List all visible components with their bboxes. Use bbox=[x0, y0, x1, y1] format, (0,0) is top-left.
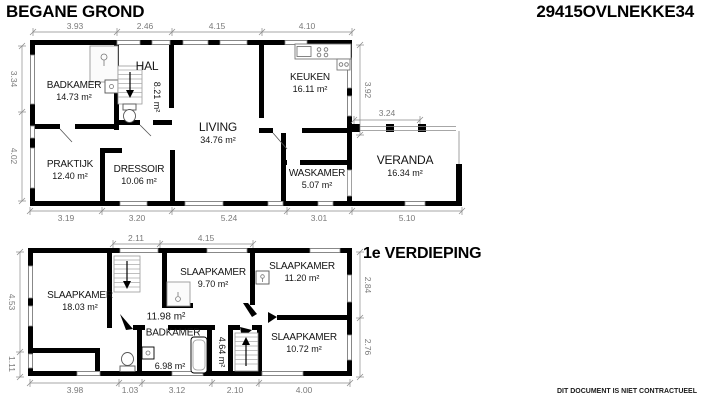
sink-icon-first bbox=[142, 347, 154, 359]
room-label-slaapkamer-mid: SLAAPKAMER 9.70 m² bbox=[180, 267, 246, 289]
room-label-dressoir: DRESSOIR 10.06 m² bbox=[114, 164, 165, 186]
dim-label: 2.11 bbox=[128, 233, 144, 243]
dim-label: 3.19 bbox=[58, 213, 75, 223]
sink-icon bbox=[105, 80, 118, 93]
ground-floor-title: BEGANE GROND bbox=[6, 2, 144, 22]
room-label-slaapkamer-left: SLAAPKAMER 18.03 m² bbox=[47, 290, 113, 312]
kitchen-counter-icon bbox=[295, 44, 351, 70]
dim-label: 2.46 bbox=[137, 21, 154, 31]
room-area-hal: 8.21 m² bbox=[152, 82, 162, 113]
floorplan-document: BEGANE GROND 29415OVLNEKKE34 1e VERDIEPI… bbox=[0, 0, 702, 402]
reference-code: 29415OVLNEKKE34 bbox=[536, 2, 694, 22]
dim-label: 3.24 bbox=[379, 108, 396, 118]
dim-label: 3.34 bbox=[9, 71, 19, 88]
room-label-badkamer-first: BADKAMER bbox=[146, 327, 201, 339]
room-label-waskamer: WASKAMER 5.07 m² bbox=[289, 168, 345, 190]
dim-label: 4.02 bbox=[9, 148, 19, 165]
dim-label: 4.00 bbox=[296, 385, 313, 395]
dim-label: 2.84 bbox=[363, 277, 373, 294]
toilet-icon bbox=[123, 104, 136, 123]
dim-label: 3.01 bbox=[311, 213, 328, 223]
dim-label: 4.53 bbox=[7, 294, 17, 311]
dim-label: 4.15 bbox=[209, 21, 226, 31]
disclaimer-text: DIT DOCUMENT IS NIET CONTRACTUEEL bbox=[557, 388, 697, 395]
dim-label: 2.76 bbox=[363, 339, 373, 356]
room-label-veranda: VERANDA 16.34 m² bbox=[377, 154, 434, 178]
shower-icon bbox=[90, 46, 118, 82]
stairs-down-icon bbox=[235, 333, 258, 371]
bathtub-icon bbox=[191, 337, 207, 373]
first-floor-title: 1e VERDIEPING bbox=[363, 245, 481, 263]
wall-cabinet-icon bbox=[256, 271, 269, 284]
toilet-icon-first bbox=[120, 353, 135, 372]
dim-label: 3.92 bbox=[363, 82, 373, 99]
dim-label: 3.93 bbox=[67, 21, 84, 31]
dim-label: 2.10 bbox=[227, 385, 244, 395]
room-area-hall-first: 4.64 m² bbox=[217, 337, 227, 368]
dim-label: 5.10 bbox=[399, 213, 416, 223]
dim-label: 3.12 bbox=[169, 385, 186, 395]
stairs-up-icon bbox=[114, 256, 140, 292]
dim-label: 1.11 bbox=[7, 356, 17, 372]
floorplan-drawing bbox=[0, 0, 702, 402]
dim-label: 3.98 bbox=[67, 385, 84, 395]
room-label-living: LIVING 34.76 m² bbox=[199, 121, 237, 145]
dim-label: 3.20 bbox=[129, 213, 146, 223]
room-label-praktijk: PRAKTIJK 12.40 m² bbox=[47, 159, 93, 181]
room-label-slaapkamer-bottom: SLAAPKAMER 10.72 m² bbox=[271, 332, 337, 354]
room-area-landing: 11.98 m² bbox=[147, 311, 186, 323]
dim-label: 4.10 bbox=[299, 21, 316, 31]
dim-label: 5.24 bbox=[221, 213, 238, 223]
room-label-slaapkamer-right: SLAAPKAMER 11.20 m² bbox=[269, 261, 335, 283]
room-label-hal: HAL bbox=[136, 60, 159, 74]
dim-label: 1.03 bbox=[122, 385, 139, 395]
room-area-badkamer-first: 6.98 m² bbox=[155, 361, 186, 371]
room-label-keuken: KEUKEN 16.11 m² bbox=[290, 72, 330, 94]
room-label-badkamer: BADKAMER 14.73 m² bbox=[47, 80, 102, 102]
dim-label: 4.15 bbox=[198, 233, 215, 243]
